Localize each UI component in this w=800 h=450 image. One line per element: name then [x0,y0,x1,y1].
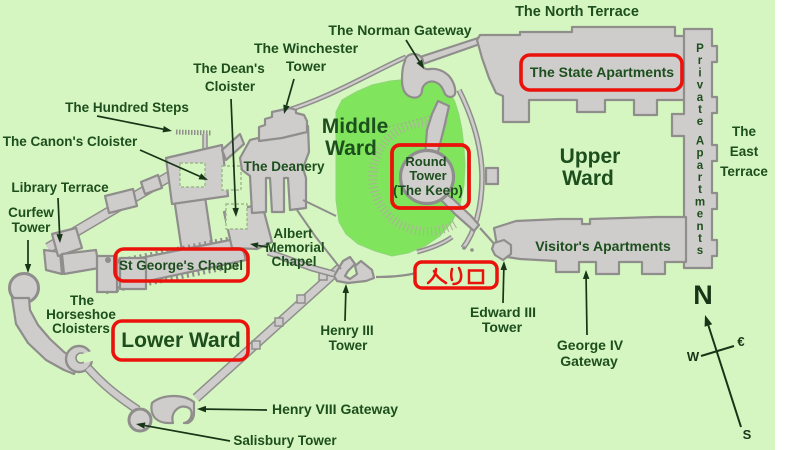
svg-text:The Hundred Steps: The Hundred Steps [65,100,189,115]
svg-text:t: t [698,233,702,245]
svg-text:s: s [697,245,703,257]
svg-text:Gateway: Gateway [560,353,618,369]
svg-text:Middle: Middle [322,115,389,138]
svg-text:The Norman Gateway: The Norman Gateway [328,22,471,38]
svg-text:a: a [697,92,704,104]
svg-text:Curfew: Curfew [8,205,54,220]
svg-text:Library Terrace: Library Terrace [11,180,109,195]
svg-text:S: S [743,427,752,442]
svg-text:Edward III: Edward III [470,304,536,320]
svg-text:Lower Ward: Lower Ward [121,329,240,352]
svg-text:Upper: Upper [560,145,621,168]
svg-text:Visitor's Apartments: Visitor's Apartments [535,238,671,254]
svg-text:N: N [693,280,713,310]
svg-text:The Dean's: The Dean's [193,61,264,76]
svg-text:Tower: Tower [12,220,51,235]
svg-text:r: r [698,55,703,67]
svg-text:p: p [696,148,703,160]
svg-text:Tower: Tower [286,58,327,74]
svg-text:Tower: Tower [329,338,368,353]
svg-text:A: A [696,135,704,147]
svg-text:The Canon's Cloister: The Canon's Cloister [3,134,138,149]
svg-text:Henry III: Henry III [320,323,373,338]
svg-text:W: W [687,349,700,364]
svg-text:Albert: Albert [273,226,313,241]
svg-text:East: East [730,144,759,159]
svg-text:t: t [698,104,702,116]
svg-text:The Winchester: The Winchester [254,40,359,56]
svg-text:i: i [698,67,701,79]
svg-text:Cloisters: Cloisters [52,321,110,336]
svg-text:n: n [696,221,703,233]
svg-text:Cloister: Cloister [205,79,256,94]
svg-text:P: P [696,43,704,55]
svg-text:The State Apartments: The State Apartments [530,64,674,80]
svg-text:Henry VIII Gateway: Henry VIII Gateway [272,401,398,417]
svg-text:t: t [698,184,702,196]
svg-text:Memorial: Memorial [265,240,324,255]
svg-text:r: r [698,172,703,184]
svg-text:€: € [737,334,744,349]
svg-text:e: e [697,209,703,221]
svg-text:Horseshoe: Horseshoe [46,307,116,322]
svg-text:The North Terrace: The North Terrace [515,4,639,20]
svg-text:The: The [70,293,94,308]
svg-text:George IV: George IV [557,337,624,353]
svg-text:Ward: Ward [325,137,377,160]
svg-text:Tower: Tower [409,168,446,183]
svg-text:a: a [697,160,704,172]
svg-text:The Deanery: The Deanery [243,159,325,174]
svg-text:v: v [697,80,704,92]
svg-text:(The Keep): (The Keep) [393,183,463,198]
svg-text:St George's Chapel: St George's Chapel [119,258,243,273]
svg-text:m: m [695,196,705,208]
svg-text:The: The [732,124,756,139]
svg-text:e: e [697,116,703,128]
svg-text:Round: Round [405,154,446,169]
svg-text:Chapel: Chapel [271,254,316,269]
svg-text:Terrace: Terrace [720,164,768,179]
svg-text:Tower: Tower [482,319,523,335]
svg-text:Ward: Ward [562,167,614,190]
svg-text:Salisbury Tower: Salisbury Tower [233,433,337,448]
